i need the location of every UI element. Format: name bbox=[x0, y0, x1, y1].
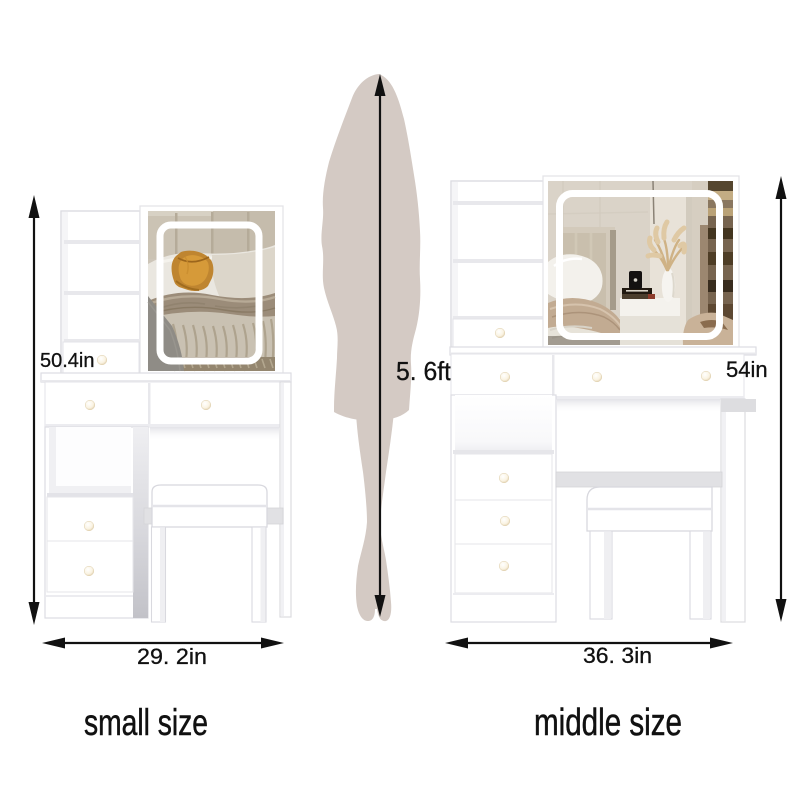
svg-text:36. 3in: 36. 3in bbox=[583, 643, 652, 668]
svg-text:29. 2in: 29. 2in bbox=[137, 644, 207, 669]
svg-text:middle size: middle size bbox=[534, 702, 682, 744]
svg-text:54in: 54in bbox=[726, 357, 768, 382]
svg-text:50.4in: 50.4in bbox=[40, 350, 95, 372]
svg-text:small size: small size bbox=[84, 702, 208, 743]
svg-text:5. 6ft: 5. 6ft bbox=[396, 356, 452, 386]
